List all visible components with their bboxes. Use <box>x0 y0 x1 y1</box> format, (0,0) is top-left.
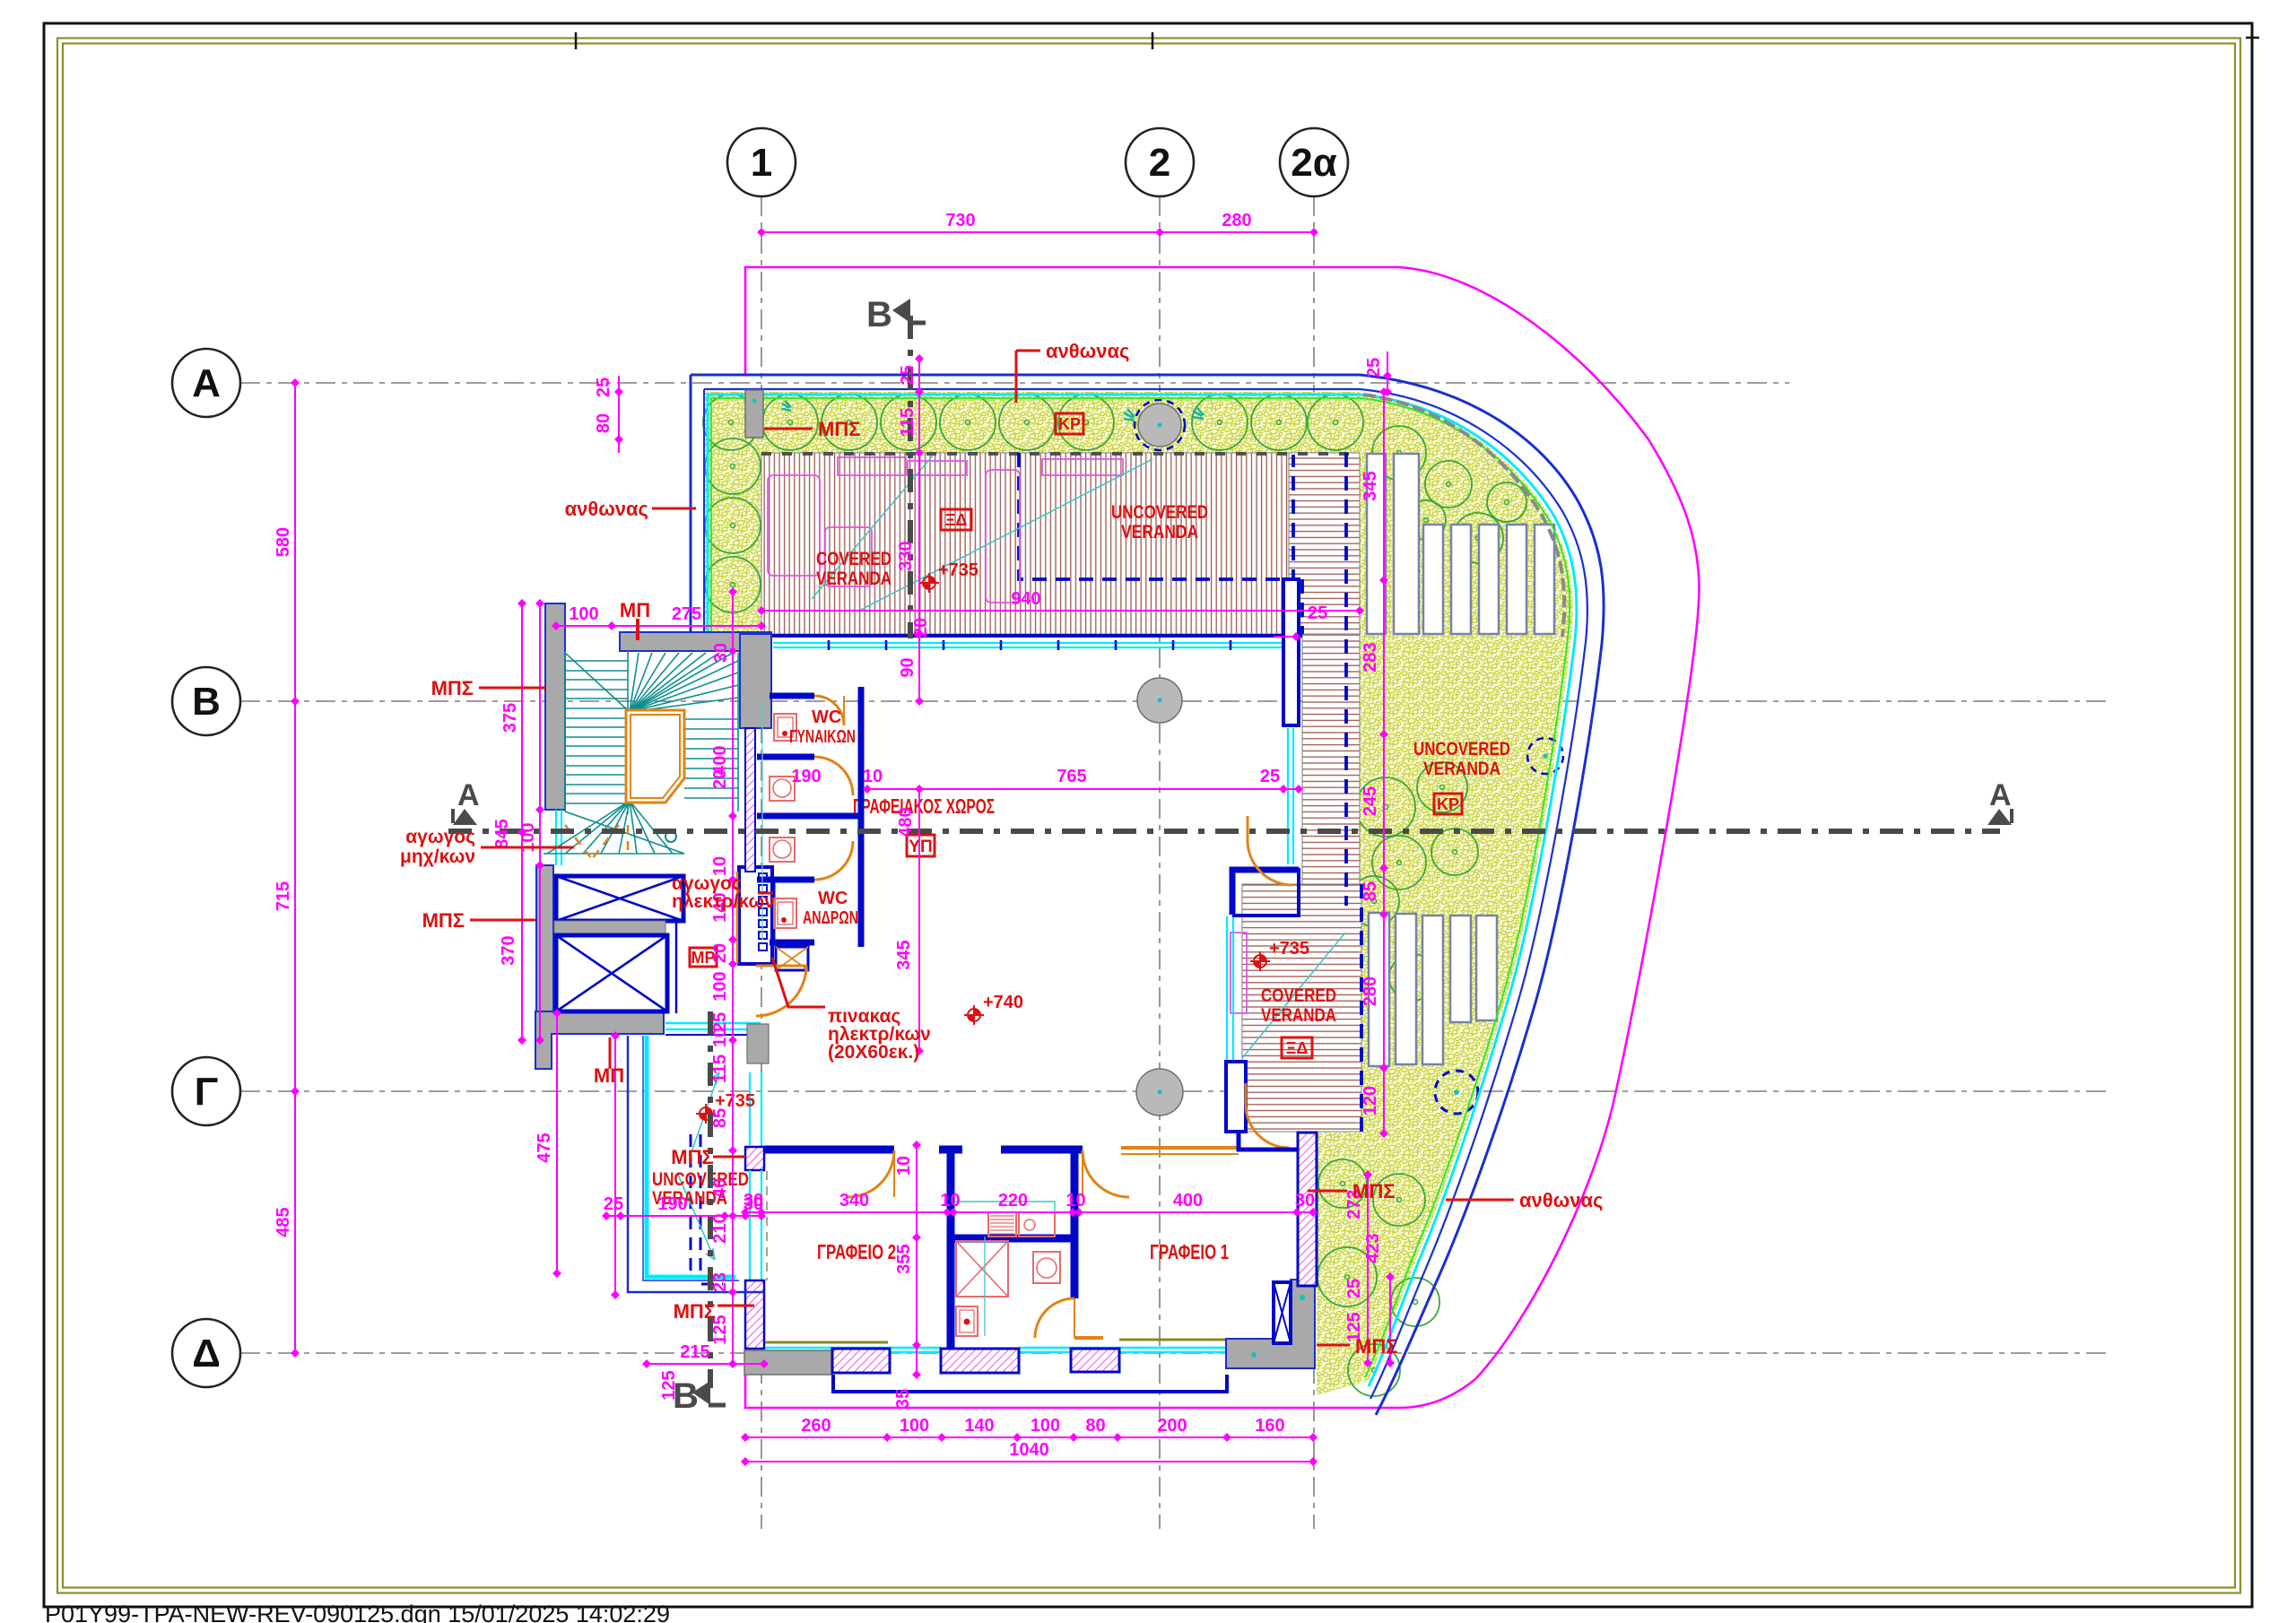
svg-text:25: 25 <box>1344 1279 1364 1298</box>
svg-text:VERANDA: VERANDA <box>816 568 891 589</box>
svg-text:25: 25 <box>1260 767 1280 786</box>
svg-text:25: 25 <box>604 1194 623 1214</box>
svg-text:ΑΝΔΡΩΝ: ΑΝΔΡΩΝ <box>803 908 858 928</box>
svg-text:A: A <box>1989 778 2012 812</box>
svg-text:375: 375 <box>500 703 520 733</box>
svg-text:200: 200 <box>1157 1416 1187 1436</box>
svg-text:220: 220 <box>998 1191 1028 1211</box>
svg-text:ΜΠΣ: ΜΠΣ <box>674 1300 716 1323</box>
svg-text:ΜΠΣ: ΜΠΣ <box>431 677 474 699</box>
svg-text:10: 10 <box>710 1028 730 1047</box>
svg-text:WC: WC <box>812 707 841 727</box>
svg-text:120: 120 <box>1361 1086 1380 1115</box>
svg-text:30: 30 <box>744 1194 763 1214</box>
svg-text:25: 25 <box>594 378 613 397</box>
svg-text:140: 140 <box>964 1416 994 1436</box>
svg-text:1: 1 <box>751 141 772 185</box>
svg-text:23: 23 <box>710 1272 730 1292</box>
svg-text:αγωγος: αγωγος <box>405 827 475 847</box>
svg-text:355: 355 <box>894 1244 914 1273</box>
svg-text:ΚΡ: ΚΡ <box>1058 415 1081 433</box>
svg-text:480: 480 <box>896 807 916 837</box>
svg-text:1040: 1040 <box>1009 1440 1049 1460</box>
svg-text:(20Χ60εκ.): (20Χ60εκ.) <box>828 1042 919 1063</box>
svg-text:85: 85 <box>1361 881 1380 901</box>
svg-text:UNCOVERED: UNCOVERED <box>1111 502 1208 523</box>
svg-text:ΓΡΑΦΕΙΟ 2: ΓΡΑΦΕΙΟ 2 <box>817 1240 896 1263</box>
svg-text:210: 210 <box>710 1213 730 1243</box>
svg-text:Δ: Δ <box>192 1332 221 1376</box>
svg-text:25: 25 <box>898 365 918 385</box>
svg-text:85: 85 <box>710 1108 730 1128</box>
svg-text:2α: 2α <box>1291 141 1337 185</box>
svg-text:125: 125 <box>659 1370 679 1400</box>
svg-text:115: 115 <box>898 408 918 437</box>
svg-text:215: 215 <box>680 1342 709 1362</box>
svg-text:190: 190 <box>657 1194 687 1214</box>
svg-text:100: 100 <box>569 604 598 624</box>
svg-text:280: 280 <box>1222 211 1251 230</box>
svg-text:UNCOVERED: UNCOVERED <box>1413 739 1510 759</box>
svg-text:100: 100 <box>900 1416 929 1436</box>
svg-text:ΜΠ: ΜΠ <box>620 599 650 621</box>
svg-text:845: 845 <box>492 819 512 848</box>
svg-text:μηχ/κων: μηχ/κων <box>400 846 475 867</box>
svg-text:423: 423 <box>1363 1233 1383 1263</box>
svg-text:ΜΠΣ: ΜΠΣ <box>422 909 465 932</box>
svg-text:VERANDA: VERANDA <box>1423 759 1500 779</box>
svg-text:260: 260 <box>801 1416 831 1436</box>
svg-text:ΜΠΣ: ΜΠΣ <box>1355 1335 1397 1358</box>
svg-text:ηλεκτρ/κων: ηλεκτρ/κων <box>672 891 775 912</box>
svg-text:345: 345 <box>1361 471 1380 500</box>
svg-text:245: 245 <box>1361 786 1380 816</box>
svg-text:ΜΠΣ: ΜΠΣ <box>671 1146 713 1168</box>
svg-text:ΜΠΣ: ΜΠΣ <box>1352 1180 1395 1202</box>
svg-text:280: 280 <box>1361 976 1380 1006</box>
svg-text:40: 40 <box>710 1178 730 1198</box>
svg-text:160: 160 <box>1255 1416 1284 1436</box>
svg-text:10: 10 <box>863 767 883 786</box>
svg-text:80: 80 <box>594 413 613 433</box>
svg-text:10: 10 <box>1065 1191 1085 1211</box>
svg-text:100: 100 <box>1031 1416 1060 1436</box>
svg-text:ΓΥΝΑΙΚΩΝ: ΓΥΝΑΙΚΩΝ <box>789 727 856 747</box>
svg-text:ΥΠ: ΥΠ <box>909 838 932 856</box>
svg-text:275: 275 <box>672 604 701 624</box>
svg-text:283: 283 <box>1361 642 1380 672</box>
svg-text:25: 25 <box>1364 358 1384 378</box>
svg-text:B: B <box>866 295 892 334</box>
svg-text:190: 190 <box>791 767 821 786</box>
svg-text:10: 10 <box>894 1156 914 1176</box>
svg-text:ΜΠΣ: ΜΠΣ <box>818 418 860 440</box>
svg-text:340: 340 <box>839 1191 869 1211</box>
svg-text:ανθωνας: ανθωνας <box>565 498 648 520</box>
svg-text:20: 20 <box>911 618 931 638</box>
svg-text:VERANDA: VERANDA <box>1261 1005 1336 1026</box>
svg-text:940: 940 <box>1011 589 1040 609</box>
svg-text:WC: WC <box>818 889 848 908</box>
svg-text:P01Y99-TPA-NEW-REV-090125.dgn: P01Y99-TPA-NEW-REV-090125.dgn 15/01/2025… <box>45 1601 670 1623</box>
svg-text:90: 90 <box>898 657 918 677</box>
svg-text:ΓΡΑΦΕΙΟ 1: ΓΡΑΦΕΙΟ 1 <box>1150 1240 1229 1263</box>
svg-text:370: 370 <box>499 935 518 965</box>
svg-text:10: 10 <box>940 1191 960 1211</box>
svg-text:ΚΡ: ΚΡ <box>1437 795 1459 813</box>
svg-text:+740: +740 <box>983 993 1023 1012</box>
svg-text:Γ: Γ <box>195 1070 218 1114</box>
svg-text:30: 30 <box>1295 1191 1315 1211</box>
svg-text:ΞΔ: ΞΔ <box>945 511 968 529</box>
svg-text:COVERED: COVERED <box>816 549 891 569</box>
svg-text:115: 115 <box>710 1055 730 1083</box>
svg-text:20: 20 <box>710 769 730 789</box>
svg-text:+735: +735 <box>1269 939 1309 959</box>
svg-text:ανθωνας: ανθωνας <box>1046 340 1129 362</box>
svg-text:COVERED: COVERED <box>1261 985 1336 1006</box>
svg-text:715: 715 <box>274 881 293 911</box>
svg-text:485: 485 <box>274 1207 293 1237</box>
svg-text:Β: Β <box>192 680 221 724</box>
svg-text:+735: +735 <box>938 560 978 580</box>
svg-text:2: 2 <box>1149 141 1170 185</box>
svg-text:ΜΠ: ΜΠ <box>594 1064 624 1087</box>
svg-text:ανθωνας: ανθωνας <box>1519 1189 1603 1211</box>
svg-text:765: 765 <box>1057 767 1086 786</box>
svg-text:Α: Α <box>192 361 221 405</box>
svg-text:ΞΔ: ΞΔ <box>1286 1039 1309 1057</box>
svg-text:475: 475 <box>535 1133 554 1162</box>
svg-text:30: 30 <box>711 643 731 663</box>
svg-text:80: 80 <box>1085 1416 1105 1436</box>
svg-text:20: 20 <box>710 943 730 963</box>
svg-text:25: 25 <box>1308 603 1327 623</box>
svg-text:35: 35 <box>893 1389 913 1409</box>
svg-text:345: 345 <box>894 940 914 969</box>
svg-text:VERANDA: VERANDA <box>1121 522 1198 542</box>
svg-text:UNCOVERED: UNCOVERED <box>652 1169 749 1190</box>
svg-text:100: 100 <box>710 971 730 1001</box>
svg-text:A: A <box>457 778 480 812</box>
svg-text:580: 580 <box>274 527 293 557</box>
svg-text:400: 400 <box>1173 1191 1203 1211</box>
svg-text:+735: +735 <box>715 1091 755 1111</box>
svg-text:ΓΡΑΦΕΙΑΚΟΣ ΧΩΡΟΣ: ΓΡΑΦΕΙΑΚΟΣ ΧΩΡΟΣ <box>853 794 995 818</box>
svg-text:330: 330 <box>896 541 916 570</box>
svg-text:730: 730 <box>945 211 975 230</box>
